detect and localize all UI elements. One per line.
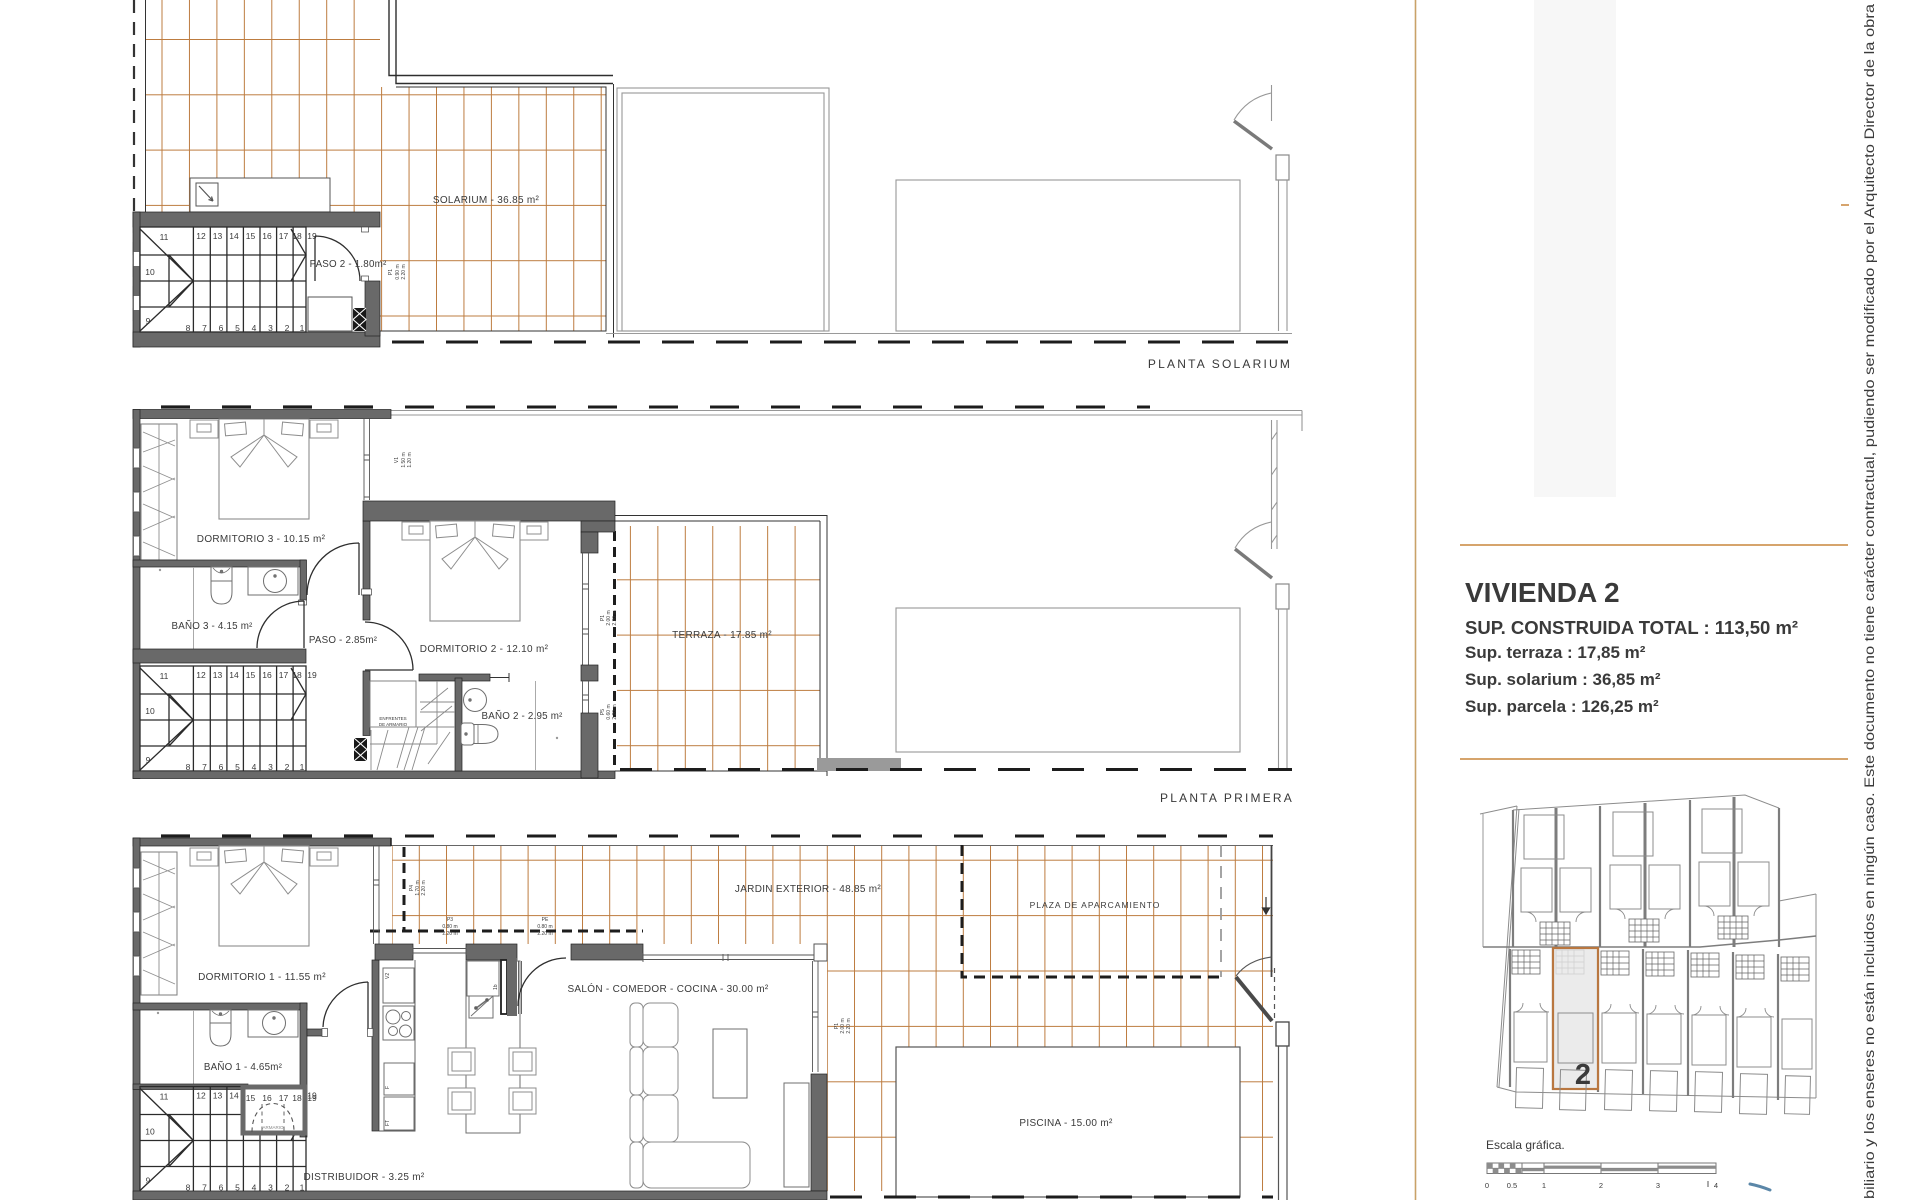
svg-text:DORMITORIO 3 - 10.15 m²: DORMITORIO 3 - 10.15 m² [197,534,326,545]
svg-text:ARMARIO: ARMARIO [262,1125,284,1130]
svg-text:4: 4 [1714,1181,1718,1190]
svg-text:PASO - 2.85m²: PASO - 2.85m² [309,635,378,646]
svg-text:FT: FT [385,1120,391,1126]
svg-text:2.20 m: 2.20 m [401,264,407,279]
svg-text:0.80 m: 0.80 m [537,924,552,930]
svg-text:PLANTA PRIMERA: PLANTA PRIMERA [1160,791,1294,805]
svg-text:BAÑO 3 - 4.15 m²: BAÑO 3 - 4.15 m² [171,621,253,632]
svg-text:19: 19 [307,1093,317,1103]
svg-text:F: F [385,1086,391,1089]
svg-text:TERRAZA - 17.85 m²: TERRAZA - 17.85 m² [672,630,772,641]
svg-text:17: 17 [279,1093,289,1103]
svg-text:Escala gráfica.: Escala gráfica. [1486,1138,1565,1152]
svg-text:Sup. solarium : 36,85 m²: Sup. solarium : 36,85 m² [1465,670,1661,689]
svg-text:2.20 m: 2.20 m [846,1018,852,1033]
svg-text:2.20 m: 2.20 m [442,931,457,937]
svg-text:15: 15 [246,1093,256,1103]
svg-text:16: 16 [262,1093,272,1103]
svg-text:SOLARIUM - 36.85 m²: SOLARIUM - 36.85 m² [433,195,540,206]
svg-text:PLANTA SOLARIUM: PLANTA SOLARIUM [1148,357,1292,371]
svg-text:3: 3 [1656,1181,1660,1190]
svg-text:2: 2 [1599,1181,1603,1190]
svg-text:PLAZA DE APARCAMIENTO: PLAZA DE APARCAMIENTO [1030,900,1161,910]
svg-text:0.80 m: 0.80 m [442,924,457,930]
svg-text:P3: P3 [447,917,453,923]
svg-text:2.20 m: 2.20 m [612,704,618,719]
svg-text:DORMITORIO 1 - 11.55 m²: DORMITORIO 1 - 11.55 m² [198,972,326,983]
svg-text:PE: PE [542,917,549,923]
svg-text:0: 0 [1485,1181,1489,1190]
svg-text:SALÓN - COMEDOR - COCINA - 30.: SALÓN - COMEDOR - COCINA - 30.00 m² [567,982,768,995]
svg-text:DE ARMARIO: DE ARMARIO [379,722,408,727]
svg-text:18: 18 [292,1093,302,1103]
svg-text:1.20 m: 1.20 m [407,452,413,467]
svg-text:SUP. CONSTRUIDA TOTAL : 113,50: SUP. CONSTRUIDA TOTAL : 113,50 m² [1465,617,1798,638]
svg-text:BAÑO 2 - 2.95 m²: BAÑO 2 - 2.95 m² [481,711,563,722]
svg-text:BAÑO 1 - 4.65m²: BAÑO 1 - 4.65m² [204,1062,283,1073]
svg-text:1: 1 [1542,1181,1546,1190]
svg-text:PASO 2 - 1.80m²: PASO 2 - 1.80m² [310,259,387,270]
svg-text:Sup. parcela : 126,25 m²: Sup. parcela : 126,25 m² [1465,697,1659,716]
svg-text:1b: 1b [493,984,499,990]
svg-text:Sup. terraza : 17,85 m²: Sup. terraza : 17,85 m² [1465,643,1646,662]
svg-text:2.20 m: 2.20 m [612,610,618,625]
svg-text:VIVIENDA 2: VIVIENDA 2 [1465,577,1620,608]
svg-text:0.5: 0.5 [1507,1181,1517,1190]
svg-text:P1: P1 [388,269,394,275]
svg-text:ENFRENTES: ENFRENTES [379,716,406,721]
svg-text:DORMITORIO 2 - 12.10 m²: DORMITORIO 2 - 12.10 m² [420,644,549,655]
svg-text:2: 2 [1575,1059,1591,1091]
svg-text:2.20 m: 2.20 m [421,880,427,895]
svg-text:PISCINA - 15.00 m²: PISCINA - 15.00 m² [1019,1118,1113,1129]
svg-text:V1: V1 [394,457,400,463]
svg-text:biliario y los enseres no está: biliario y los enseres no están incluido… [1862,3,1877,1199]
svg-text:DISTRIBUIDOR - 3.25 m²: DISTRIBUIDOR - 3.25 m² [303,1172,424,1183]
svg-text:JARDIN EXTERIOR - 48.85 m²: JARDIN EXTERIOR - 48.85 m² [735,884,882,895]
svg-text:V2: V2 [385,973,391,979]
svg-text:2.20 m: 2.20 m [537,931,552,937]
